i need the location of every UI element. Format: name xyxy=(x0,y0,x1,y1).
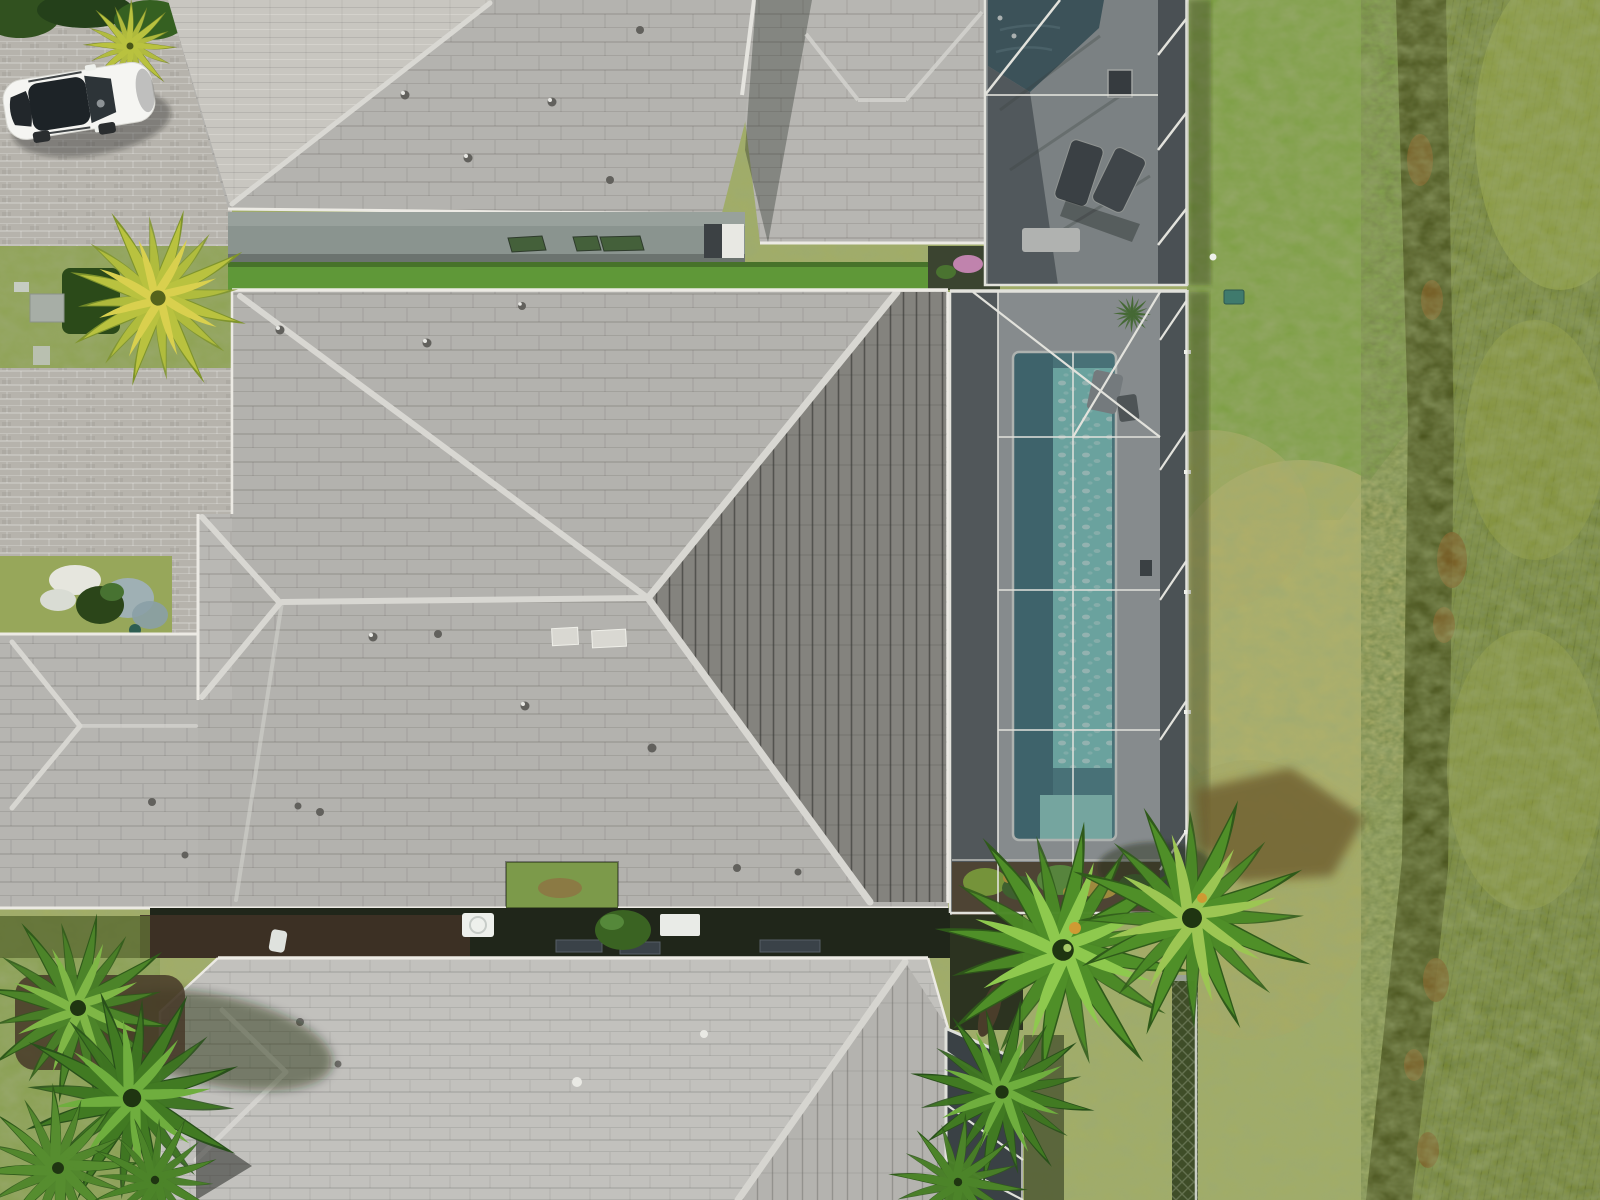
wetland-bright-patch xyxy=(1465,320,1600,560)
main-pool-enclosure xyxy=(950,290,1209,915)
palm-bloom xyxy=(1069,922,1081,934)
utility-pad xyxy=(30,294,64,322)
utility-box xyxy=(1224,290,1244,304)
screen-mesh xyxy=(985,0,1187,285)
aerial-photo xyxy=(0,0,1600,1200)
scene-canvas xyxy=(0,0,1600,1200)
utility-marker xyxy=(33,346,50,365)
enclosure-shadow xyxy=(1189,0,1211,285)
pink-flower-shrub xyxy=(953,255,983,273)
wetland-bright-patch xyxy=(1447,630,1600,910)
car-roof-glass xyxy=(27,76,92,132)
top-pool-enclosure xyxy=(985,0,1211,285)
palm-bloom xyxy=(1197,893,1207,903)
sprinkler-head xyxy=(1210,254,1217,261)
utility-marker xyxy=(14,282,29,292)
shrub xyxy=(595,910,651,950)
shaded-grass xyxy=(0,916,150,958)
mulch-bed xyxy=(140,915,470,958)
top-house-flat-band xyxy=(228,212,745,262)
between-houses-gap xyxy=(0,908,950,958)
roof-notch-courtyard xyxy=(506,862,618,908)
